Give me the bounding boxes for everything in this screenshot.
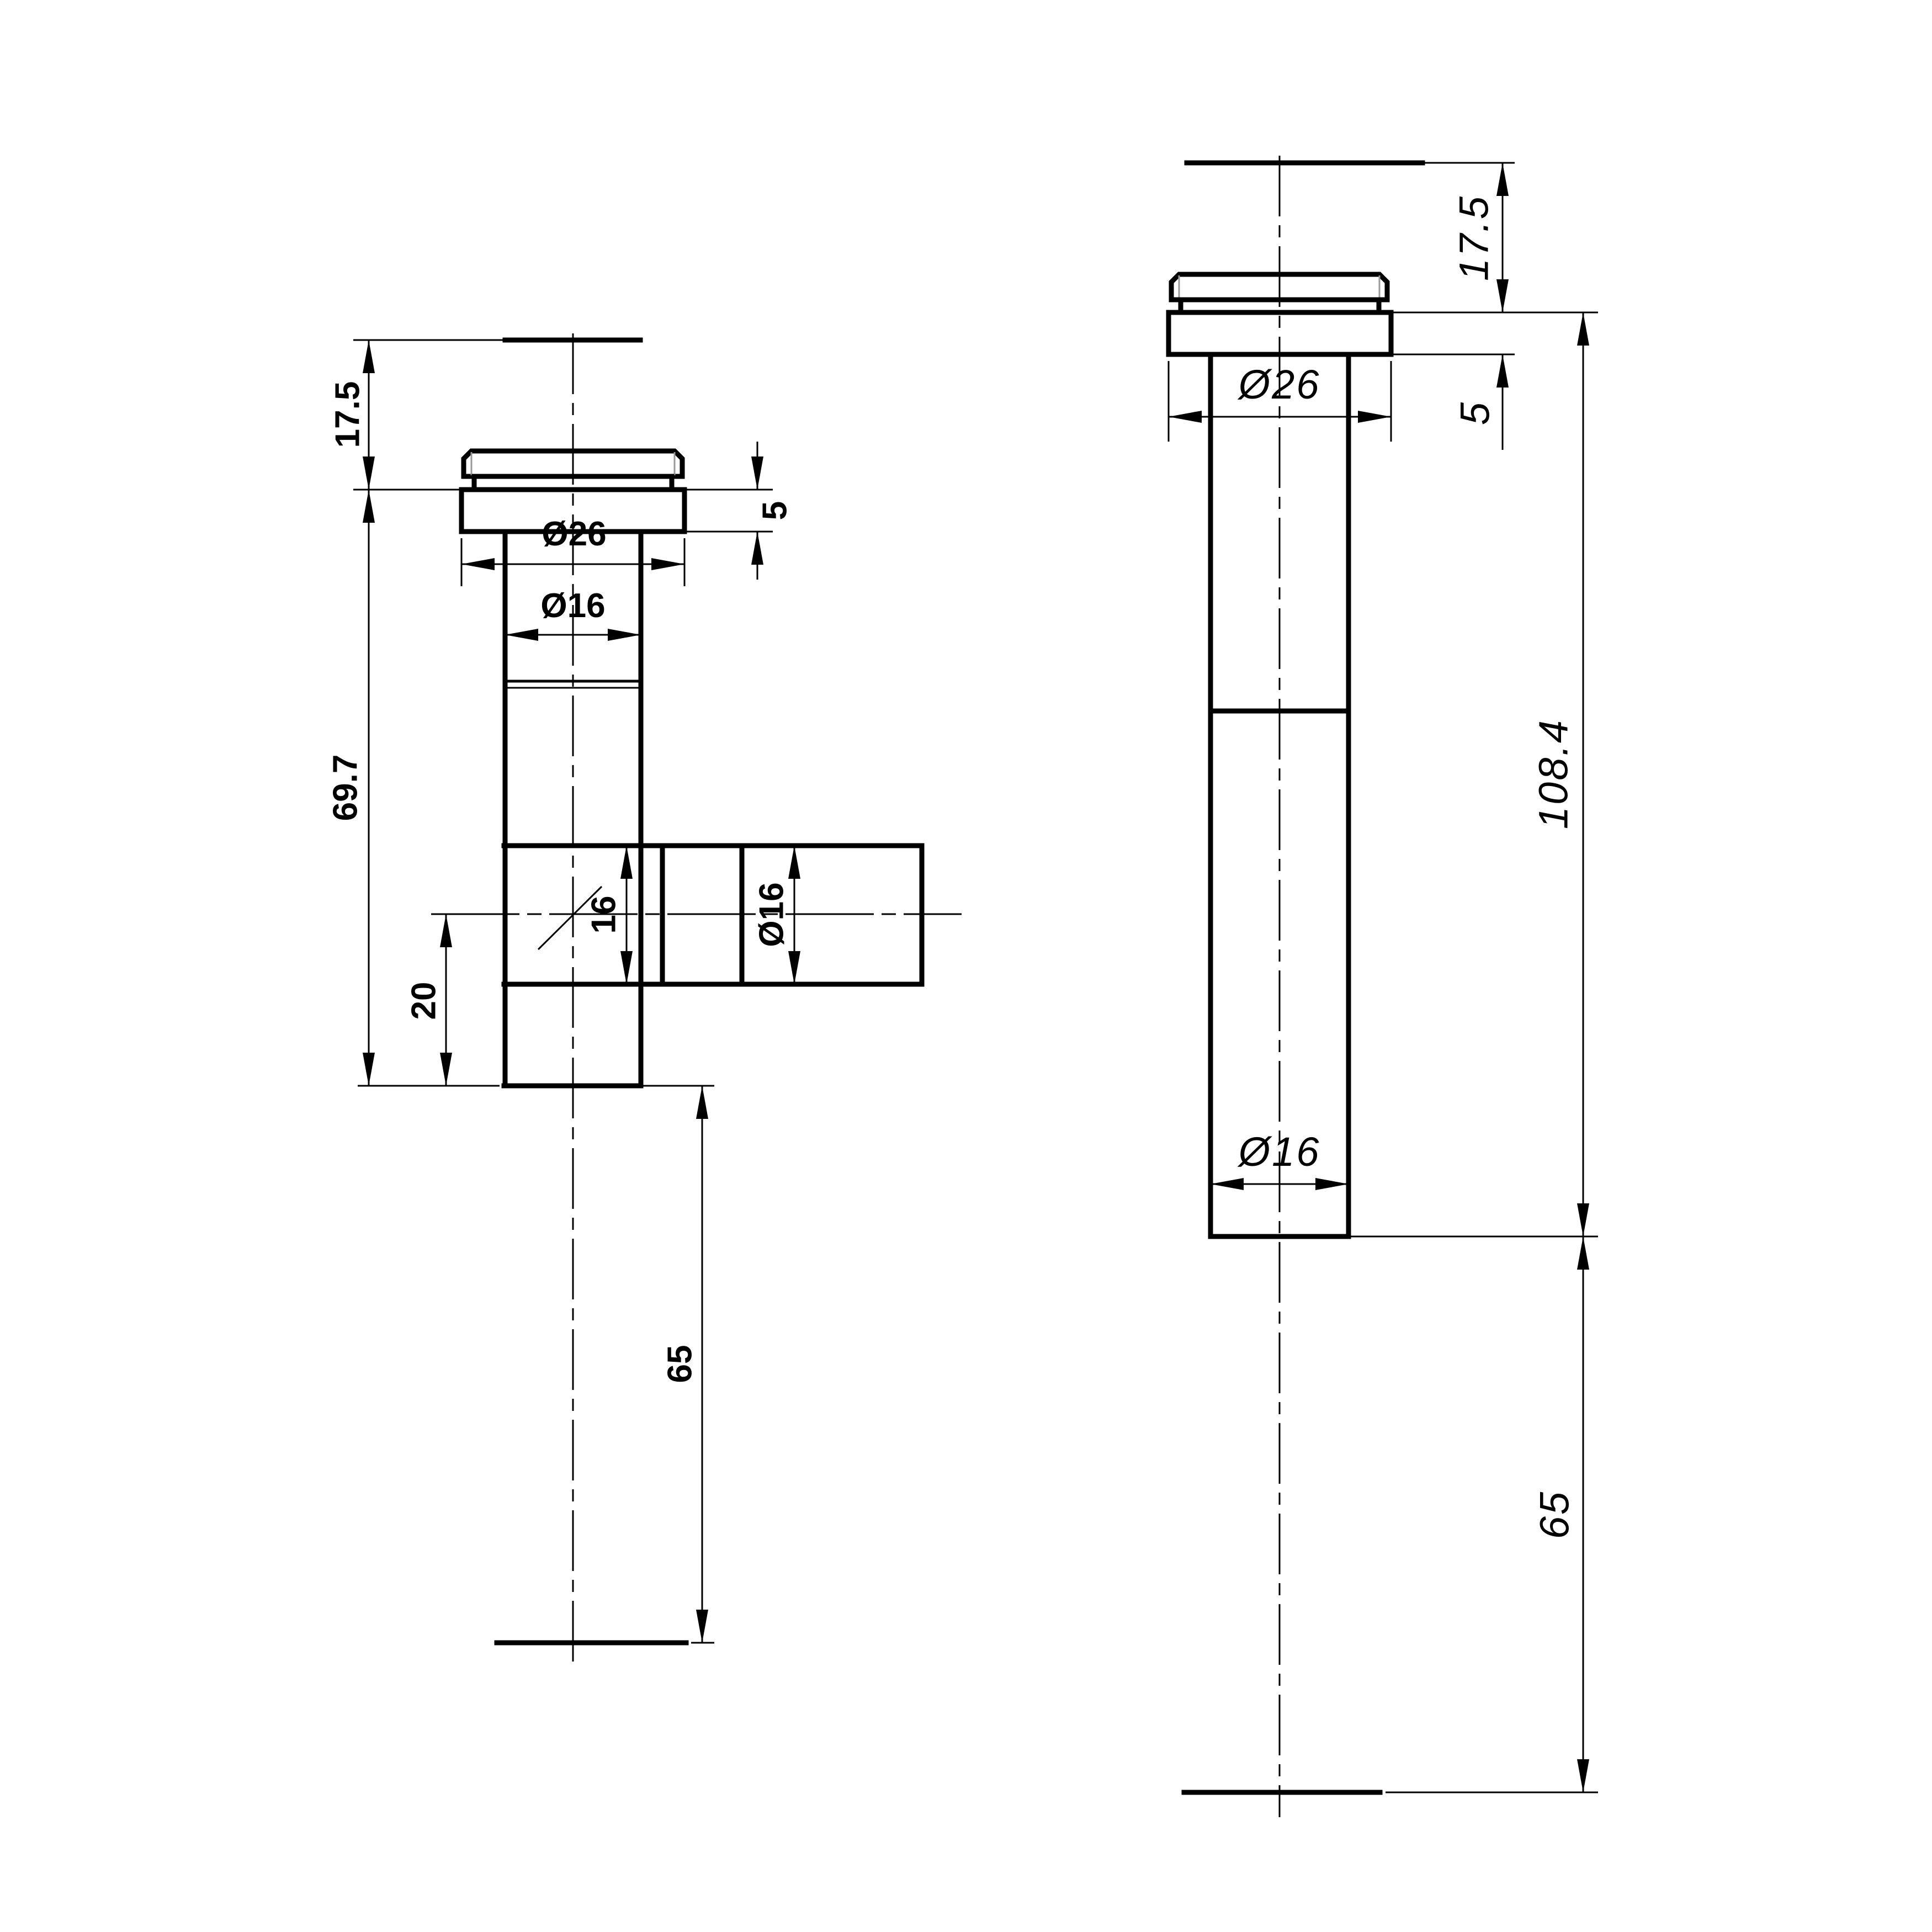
front-dim-label-branch-bore: 16 [585, 896, 623, 934]
front-arrow-d16-right [608, 629, 641, 641]
front-dim-label-stem-diameter: Ø16 [540, 587, 605, 625]
side-arrow-d26-left [1169, 411, 1202, 423]
front-view: 17.5 69.7 5 Ø26 Ø16 16 Ø16 [326, 333, 962, 1663]
front-arrow-d26-right [651, 558, 684, 570]
front-arrow-69_7-top [363, 490, 375, 523]
front-arrow-5-bottom [751, 532, 763, 565]
side-dim-label-flange-thickness: 5 [1452, 401, 1498, 425]
side-dim-label-overall-length: 108.4 [1531, 719, 1577, 829]
front-arrow-16-top [620, 846, 633, 879]
side-arrow-108_4-top [1577, 312, 1589, 346]
front-arrow-16-bottom [620, 951, 633, 984]
front-arrow-d16b-top [788, 846, 800, 879]
side-dim-label-tail-length: 65 [1532, 1490, 1578, 1539]
front-arrow-5-top [751, 457, 763, 490]
side-arrow-d26-right [1358, 411, 1391, 423]
front-arrow-69_7-bottom [363, 1053, 375, 1086]
front-arrow-17_5-bottom [363, 457, 375, 490]
side-arrow-65-bottom [1577, 1759, 1589, 1792]
front-arrow-65-bottom [696, 1610, 708, 1643]
side-arrow-108_4-bottom [1577, 1203, 1589, 1236]
technical-drawing: 17.5 69.7 5 Ø26 Ø16 16 Ø16 [0, 0, 1932, 1932]
front-dim-label-tail-length: 65 [661, 1345, 699, 1383]
side-dim-label-stem-diameter: Ø16 [1237, 1129, 1321, 1175]
side-arrow-17_5-bottom [1496, 279, 1509, 312]
side-view: 17.5 5 Ø26 108.4 Ø16 65 [1169, 156, 1598, 1817]
side-arrow-65-top [1577, 1236, 1589, 1270]
side-dim-label-flange-diameter: Ø26 [1237, 362, 1321, 407]
front-dim-label-flange-thickness: 5 [756, 501, 794, 520]
front-arrow-d26-left [461, 558, 495, 570]
front-arrow-17_5-top [363, 340, 375, 373]
front-dim-label-branch-diameter: Ø16 [752, 882, 790, 947]
front-arrow-d16b-bottom [788, 951, 800, 984]
side-arrow-d16-left [1211, 1178, 1244, 1190]
technical-drawing-page: 17.5 69.7 5 Ø26 Ø16 16 Ø16 [0, 0, 1932, 1932]
side-dim-label-cap-height: 17.5 [1451, 195, 1497, 281]
side-arrow-5-bottom [1496, 354, 1509, 388]
front-dim-label-flange-diameter: Ø26 [542, 515, 606, 553]
side-arrow-d16-right [1315, 1178, 1349, 1190]
front-arrow-65-top [696, 1086, 708, 1119]
front-arrow-d16-left [505, 629, 538, 641]
front-dim-label-stem-length: 69.7 [326, 755, 364, 821]
front-arrow-20-bottom [440, 1053, 452, 1086]
front-dim-label-cap-height: 17.5 [328, 381, 367, 448]
side-arrow-17_5-top [1496, 163, 1509, 196]
front-dim-label-branch-offset: 20 [405, 982, 443, 1020]
front-arrow-20-top [440, 914, 452, 947]
